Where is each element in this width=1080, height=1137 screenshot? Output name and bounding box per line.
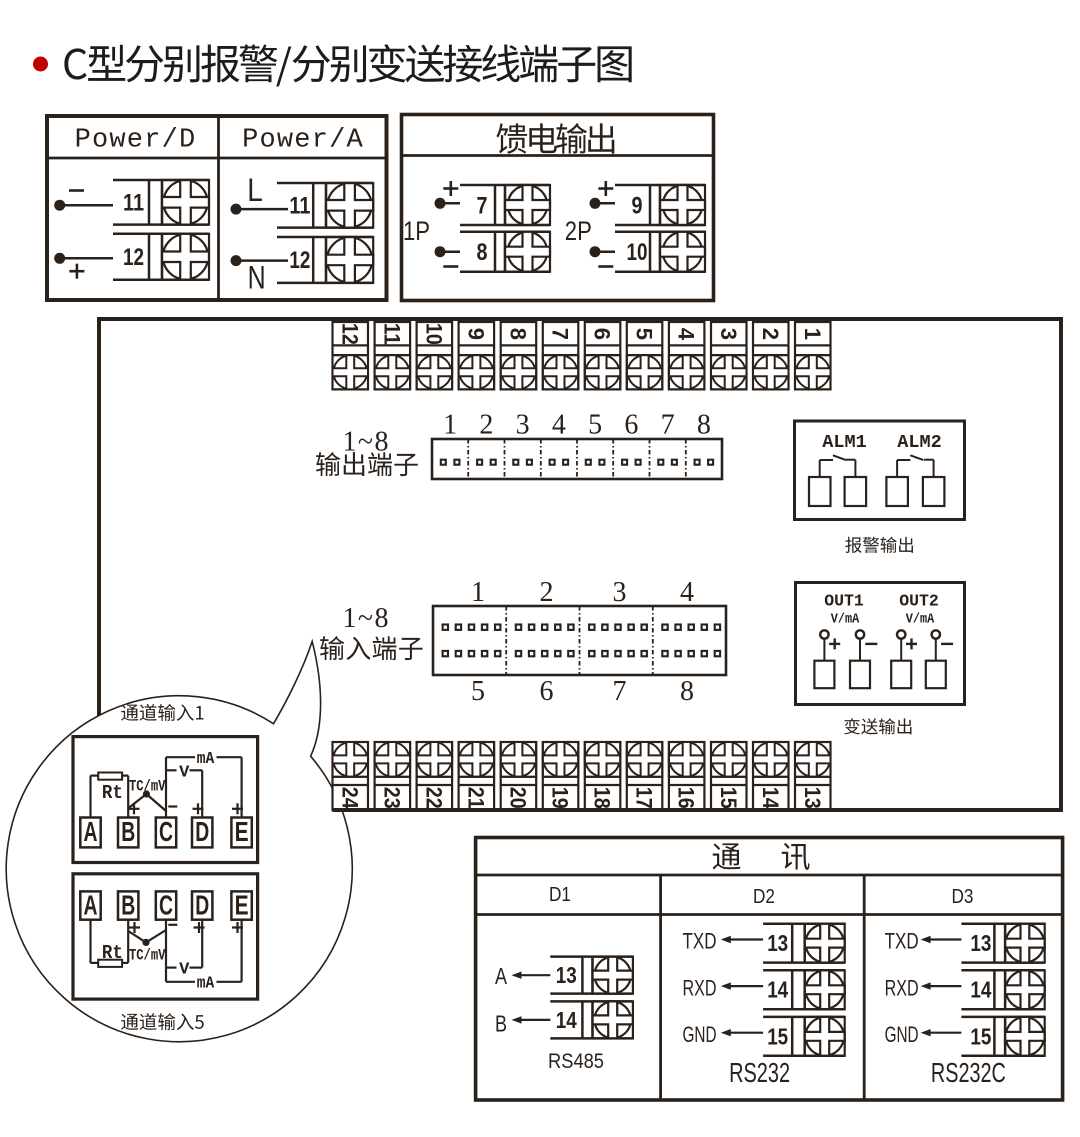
svg-text:TXD: TXD <box>885 929 919 954</box>
svg-text:D3: D3 <box>952 885 974 908</box>
svg-text:2: 2 <box>479 410 493 441</box>
svg-text:1~8: 1~8 <box>343 603 389 634</box>
svg-text:RXD: RXD <box>885 975 919 1000</box>
svg-text:7: 7 <box>661 410 675 441</box>
svg-text:8: 8 <box>506 328 531 340</box>
svg-text:A: A <box>84 890 98 921</box>
svg-text:D2: D2 <box>753 885 775 908</box>
svg-text:7: 7 <box>548 328 573 340</box>
svg-text:10: 10 <box>421 323 446 345</box>
svg-text:D: D <box>195 890 209 921</box>
svg-text:B: B <box>495 1011 507 1037</box>
svg-text:C: C <box>159 890 173 921</box>
svg-text:C: C <box>159 816 173 847</box>
svg-text:12: 12 <box>289 247 310 274</box>
svg-text:17: 17 <box>632 787 657 809</box>
svg-text:4: 4 <box>552 410 566 441</box>
svg-text:D1: D1 <box>549 883 571 906</box>
svg-text:2: 2 <box>540 577 554 608</box>
svg-text:5: 5 <box>471 676 485 707</box>
svg-text:14: 14 <box>758 787 783 810</box>
svg-text:13: 13 <box>800 787 825 809</box>
svg-text:RS232: RS232 <box>729 1057 790 1088</box>
svg-text:mA: mA <box>197 973 215 992</box>
svg-text:TC/mV: TC/mV <box>129 947 166 965</box>
svg-text:4: 4 <box>680 577 694 608</box>
svg-text:RS232C: RS232C <box>931 1057 1006 1088</box>
svg-text:8: 8 <box>477 239 488 266</box>
svg-text:6: 6 <box>624 410 638 441</box>
svg-text:GND: GND <box>683 1022 717 1047</box>
svg-text:19: 19 <box>548 787 573 809</box>
svg-text:ALM1: ALM1 <box>822 432 866 453</box>
svg-text:9: 9 <box>632 192 643 219</box>
svg-text:3: 3 <box>516 410 530 441</box>
svg-text:2: 2 <box>758 328 783 340</box>
svg-text:GND: GND <box>885 1022 919 1047</box>
svg-text:22: 22 <box>421 787 446 809</box>
svg-text:16: 16 <box>674 787 699 809</box>
svg-text:RXD: RXD <box>683 975 717 1000</box>
svg-text:5: 5 <box>632 328 657 340</box>
svg-text:V: V <box>179 763 190 782</box>
svg-text:OUT2: OUT2 <box>899 592 939 611</box>
svg-text:12: 12 <box>123 244 144 271</box>
svg-text:20: 20 <box>506 787 531 809</box>
svg-text:V: V <box>179 961 190 980</box>
svg-text:B: B <box>121 890 135 921</box>
svg-text:14: 14 <box>970 977 991 1003</box>
svg-text:12: 12 <box>337 323 362 345</box>
svg-text:D: D <box>195 816 209 847</box>
svg-text:RS485: RS485 <box>548 1049 604 1073</box>
svg-text:6: 6 <box>590 328 615 340</box>
svg-text:5: 5 <box>588 410 602 441</box>
svg-text:Power/A: Power/A <box>242 126 364 156</box>
svg-text:13: 13 <box>767 930 788 956</box>
svg-text:21: 21 <box>463 787 488 809</box>
svg-text:1: 1 <box>443 410 457 441</box>
svg-text:11: 11 <box>123 190 144 217</box>
svg-text:E: E <box>235 890 249 921</box>
svg-text:A: A <box>84 816 98 847</box>
svg-text:1: 1 <box>471 577 485 608</box>
svg-text:OUT1: OUT1 <box>824 592 864 611</box>
svg-text:V/mA: V/mA <box>831 613 860 628</box>
svg-text:10: 10 <box>627 239 648 266</box>
svg-text:18: 18 <box>590 787 615 809</box>
svg-text:Rt: Rt <box>102 942 123 964</box>
svg-text:V/mA: V/mA <box>906 613 935 628</box>
svg-text:4: 4 <box>674 328 699 341</box>
svg-text:3: 3 <box>716 328 741 340</box>
svg-text:B: B <box>121 816 135 847</box>
svg-text:1P: 1P <box>403 216 430 246</box>
svg-text:L: L <box>247 172 263 208</box>
svg-text:14: 14 <box>767 977 788 1003</box>
svg-text:24: 24 <box>337 787 362 810</box>
svg-text:6: 6 <box>540 676 554 707</box>
svg-text:3: 3 <box>613 577 627 608</box>
svg-text:9: 9 <box>463 328 488 340</box>
svg-text:15: 15 <box>716 787 741 809</box>
svg-text:Rt: Rt <box>102 782 123 804</box>
svg-text:ALM2: ALM2 <box>897 432 941 453</box>
svg-text:15: 15 <box>970 1023 991 1049</box>
svg-text:Power/D: Power/D <box>75 126 197 156</box>
svg-text:7: 7 <box>477 192 488 219</box>
svg-text:1~8: 1~8 <box>343 427 389 458</box>
svg-text:A: A <box>495 963 507 989</box>
svg-text:13: 13 <box>556 962 577 988</box>
svg-text:11: 11 <box>289 193 310 220</box>
svg-text:14: 14 <box>556 1007 577 1033</box>
svg-text:11: 11 <box>379 323 404 345</box>
svg-text:2P: 2P <box>565 216 592 246</box>
svg-text:13: 13 <box>970 930 991 956</box>
svg-text:8: 8 <box>680 676 694 707</box>
svg-text:mA: mA <box>197 749 215 768</box>
svg-text:E: E <box>235 816 249 847</box>
svg-text:8: 8 <box>697 410 711 441</box>
svg-text:15: 15 <box>767 1023 788 1049</box>
svg-text:23: 23 <box>379 787 404 809</box>
svg-text:N: N <box>248 259 266 295</box>
svg-text:7: 7 <box>613 676 627 707</box>
svg-text:TXD: TXD <box>683 929 717 954</box>
svg-text:1: 1 <box>800 328 825 340</box>
